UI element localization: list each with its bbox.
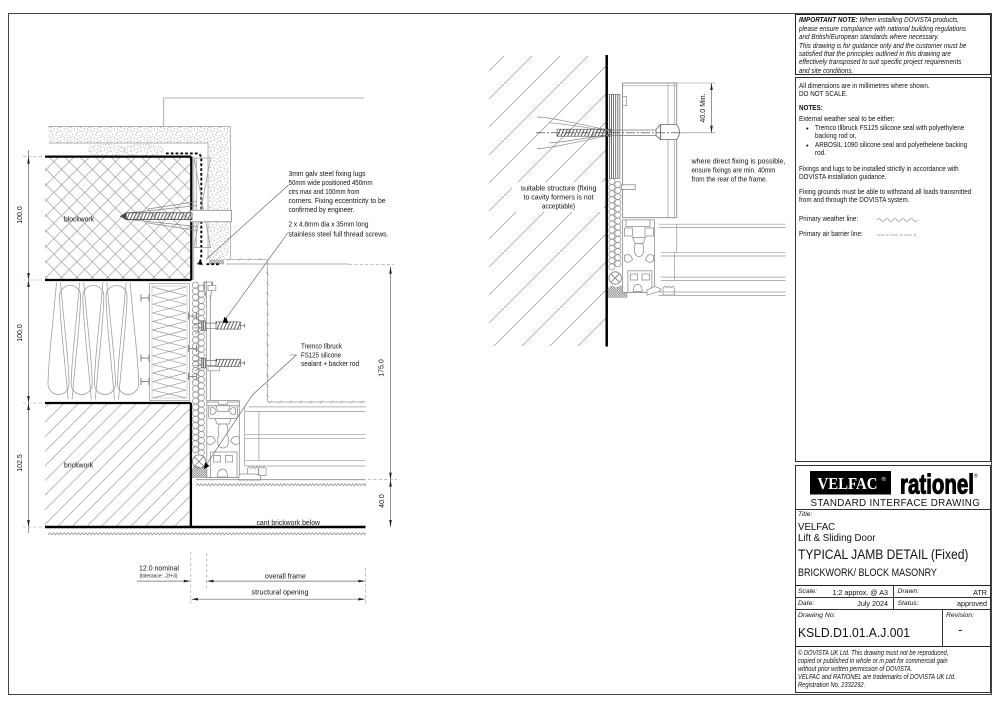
svg-text:®: ®: [974, 472, 978, 479]
svg-text:®: ®: [881, 476, 886, 483]
svg-text:VELFAC: VELFAC: [817, 474, 877, 493]
svg-text:rationel: rationel: [900, 470, 974, 496]
